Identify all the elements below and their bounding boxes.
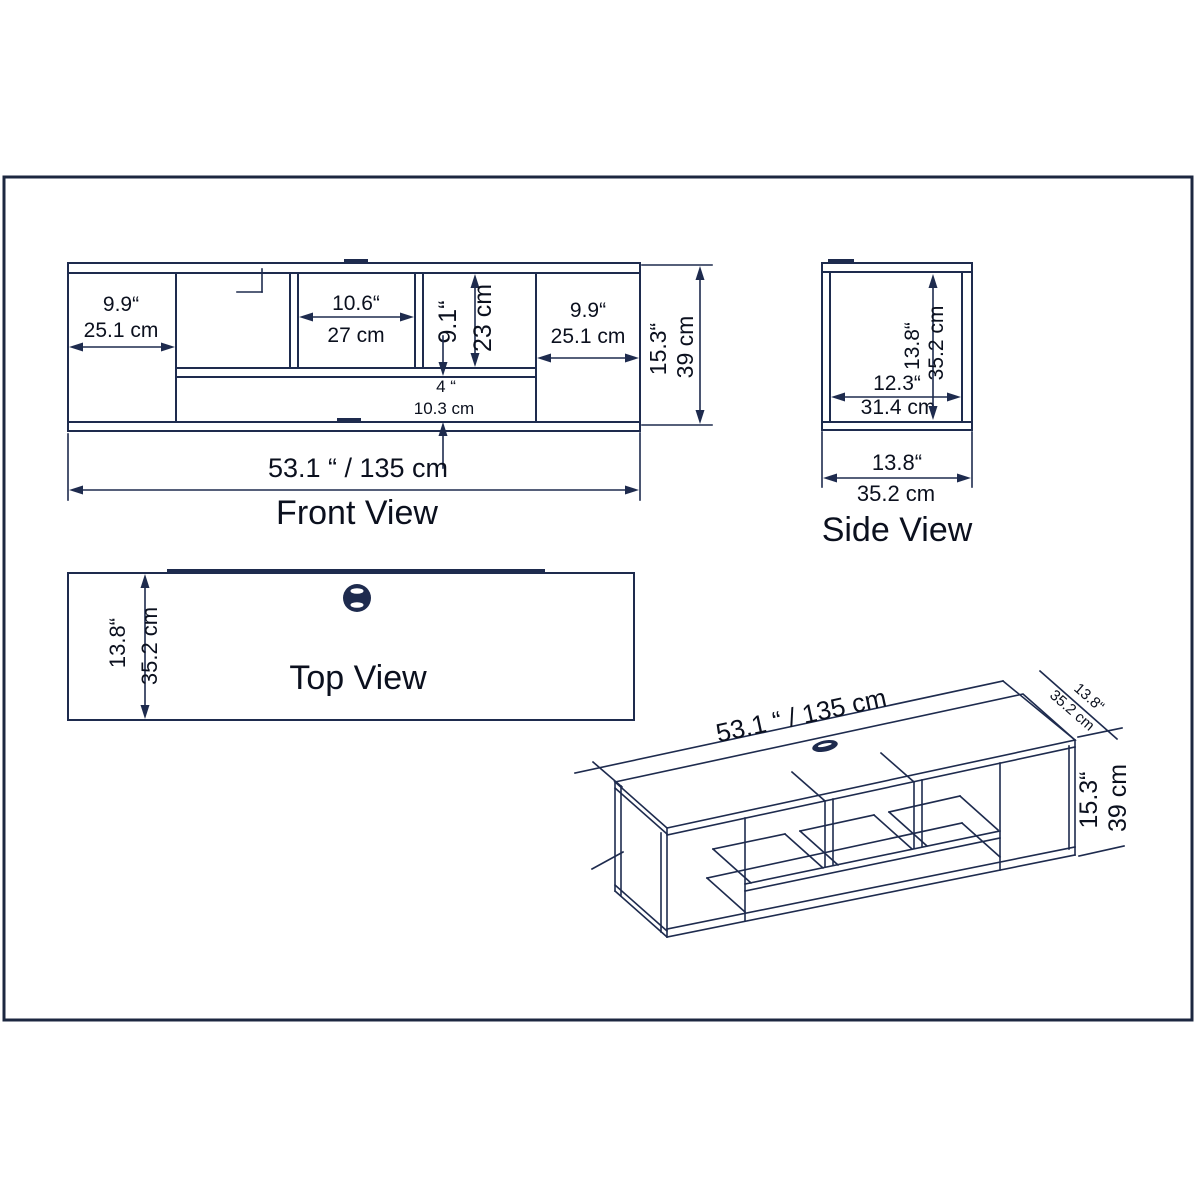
- front-width-label: 53.1 “ / 135 cm: [268, 453, 448, 483]
- technical-drawing-canvas: 9.9“ 25.1 cm 10.6“ 27 cm 9.1“ 23 cm 9.9“…: [0, 0, 1200, 1200]
- side-height-inches-label: 13.8“: [901, 322, 924, 370]
- iso-dimensions: 53.1 “ / 135 cm 13.8“ 35.2 cm 15.3“ 39 c…: [575, 671, 1132, 869]
- front-left-inches-label: 9.9“: [103, 293, 139, 316]
- front-middle-inches-label: 10.6“: [332, 292, 380, 315]
- cable-hole-icon: [343, 584, 371, 612]
- front-view: 9.9“ 25.1 cm 10.6“ 27 cm 9.1“ 23 cm 9.9“…: [68, 259, 712, 532]
- side-top-edge-tick: [828, 259, 854, 263]
- iso-height-cm-label: 39 cm: [1104, 764, 1132, 832]
- cable-hole-icon-3d: [811, 738, 839, 754]
- front-right-inches-label: 9.9“: [570, 299, 606, 322]
- side-height-cm-label: 35.2 cm: [925, 306, 948, 381]
- front-middle-cm-label: 27 cm: [327, 324, 384, 347]
- front-right-dimension: 9.9“ 25.1 cm: [537, 299, 639, 363]
- front-width-dimension: 53.1 “ / 135 cm: [68, 433, 640, 500]
- front-right-cm-label: 25.1 cm: [551, 325, 626, 348]
- technical-drawing-page: 9.9“ 25.1 cm 10.6“ 27 cm 9.1“ 23 cm 9.9“…: [0, 0, 1200, 1200]
- front-opening-inches-label: 9.1“: [434, 300, 462, 343]
- front-middle-dimension: 10.6“ 27 cm: [299, 292, 414, 347]
- front-opening-cm-label: 23 cm: [469, 284, 497, 352]
- front-left-cm-label: 25.1 cm: [84, 319, 159, 342]
- top-view-title: Top View: [289, 659, 427, 697]
- front-height-inches-label: 15.3“: [645, 323, 671, 375]
- perspective-view: 53.1 “ / 135 cm 13.8“ 35.2 cm 15.3“ 39 c…: [575, 671, 1132, 937]
- side-view: 12.3“ 31.4 cm 13.8“ 35.2 cm 13.8“ 35.2 c…: [822, 259, 973, 549]
- top-depth-cm-label: 35.2 cm: [137, 607, 162, 685]
- front-height-dimension: 15.3“ 39 cm: [642, 265, 712, 425]
- side-depth-cm-label: 35.2 cm: [857, 481, 935, 506]
- side-depth-dimension: 13.8“ 35.2 cm: [822, 432, 972, 506]
- bottom-edge-tick: [337, 418, 361, 422]
- iso-width-label: 53.1 “ / 135 cm: [713, 682, 889, 748]
- side-inner-inches-label: 12.3“: [873, 372, 921, 395]
- side-view-title: Side View: [822, 511, 973, 549]
- top-depth-inches-label: 13.8“: [105, 618, 130, 668]
- side-depth-inches-label: 13.8“: [872, 450, 922, 475]
- top-depth-dimension: 13.8“ 35.2 cm: [105, 574, 162, 719]
- front-slot-inches-label: 4 “: [436, 377, 456, 396]
- top-edge-tick: [344, 259, 368, 263]
- front-height-cm-label: 39 cm: [672, 316, 698, 379]
- iso-height-inches-label: 15.3“: [1075, 772, 1103, 829]
- front-left-dimension: 9.9“ 25.1 cm: [69, 293, 175, 352]
- front-slot-cm-label: 10.3 cm: [414, 399, 474, 418]
- top-view: 13.8“ 35.2 cm Top View: [68, 571, 634, 720]
- front-view-title: Front View: [276, 494, 438, 532]
- side-inner-cm-label: 31.4 cm: [861, 396, 936, 419]
